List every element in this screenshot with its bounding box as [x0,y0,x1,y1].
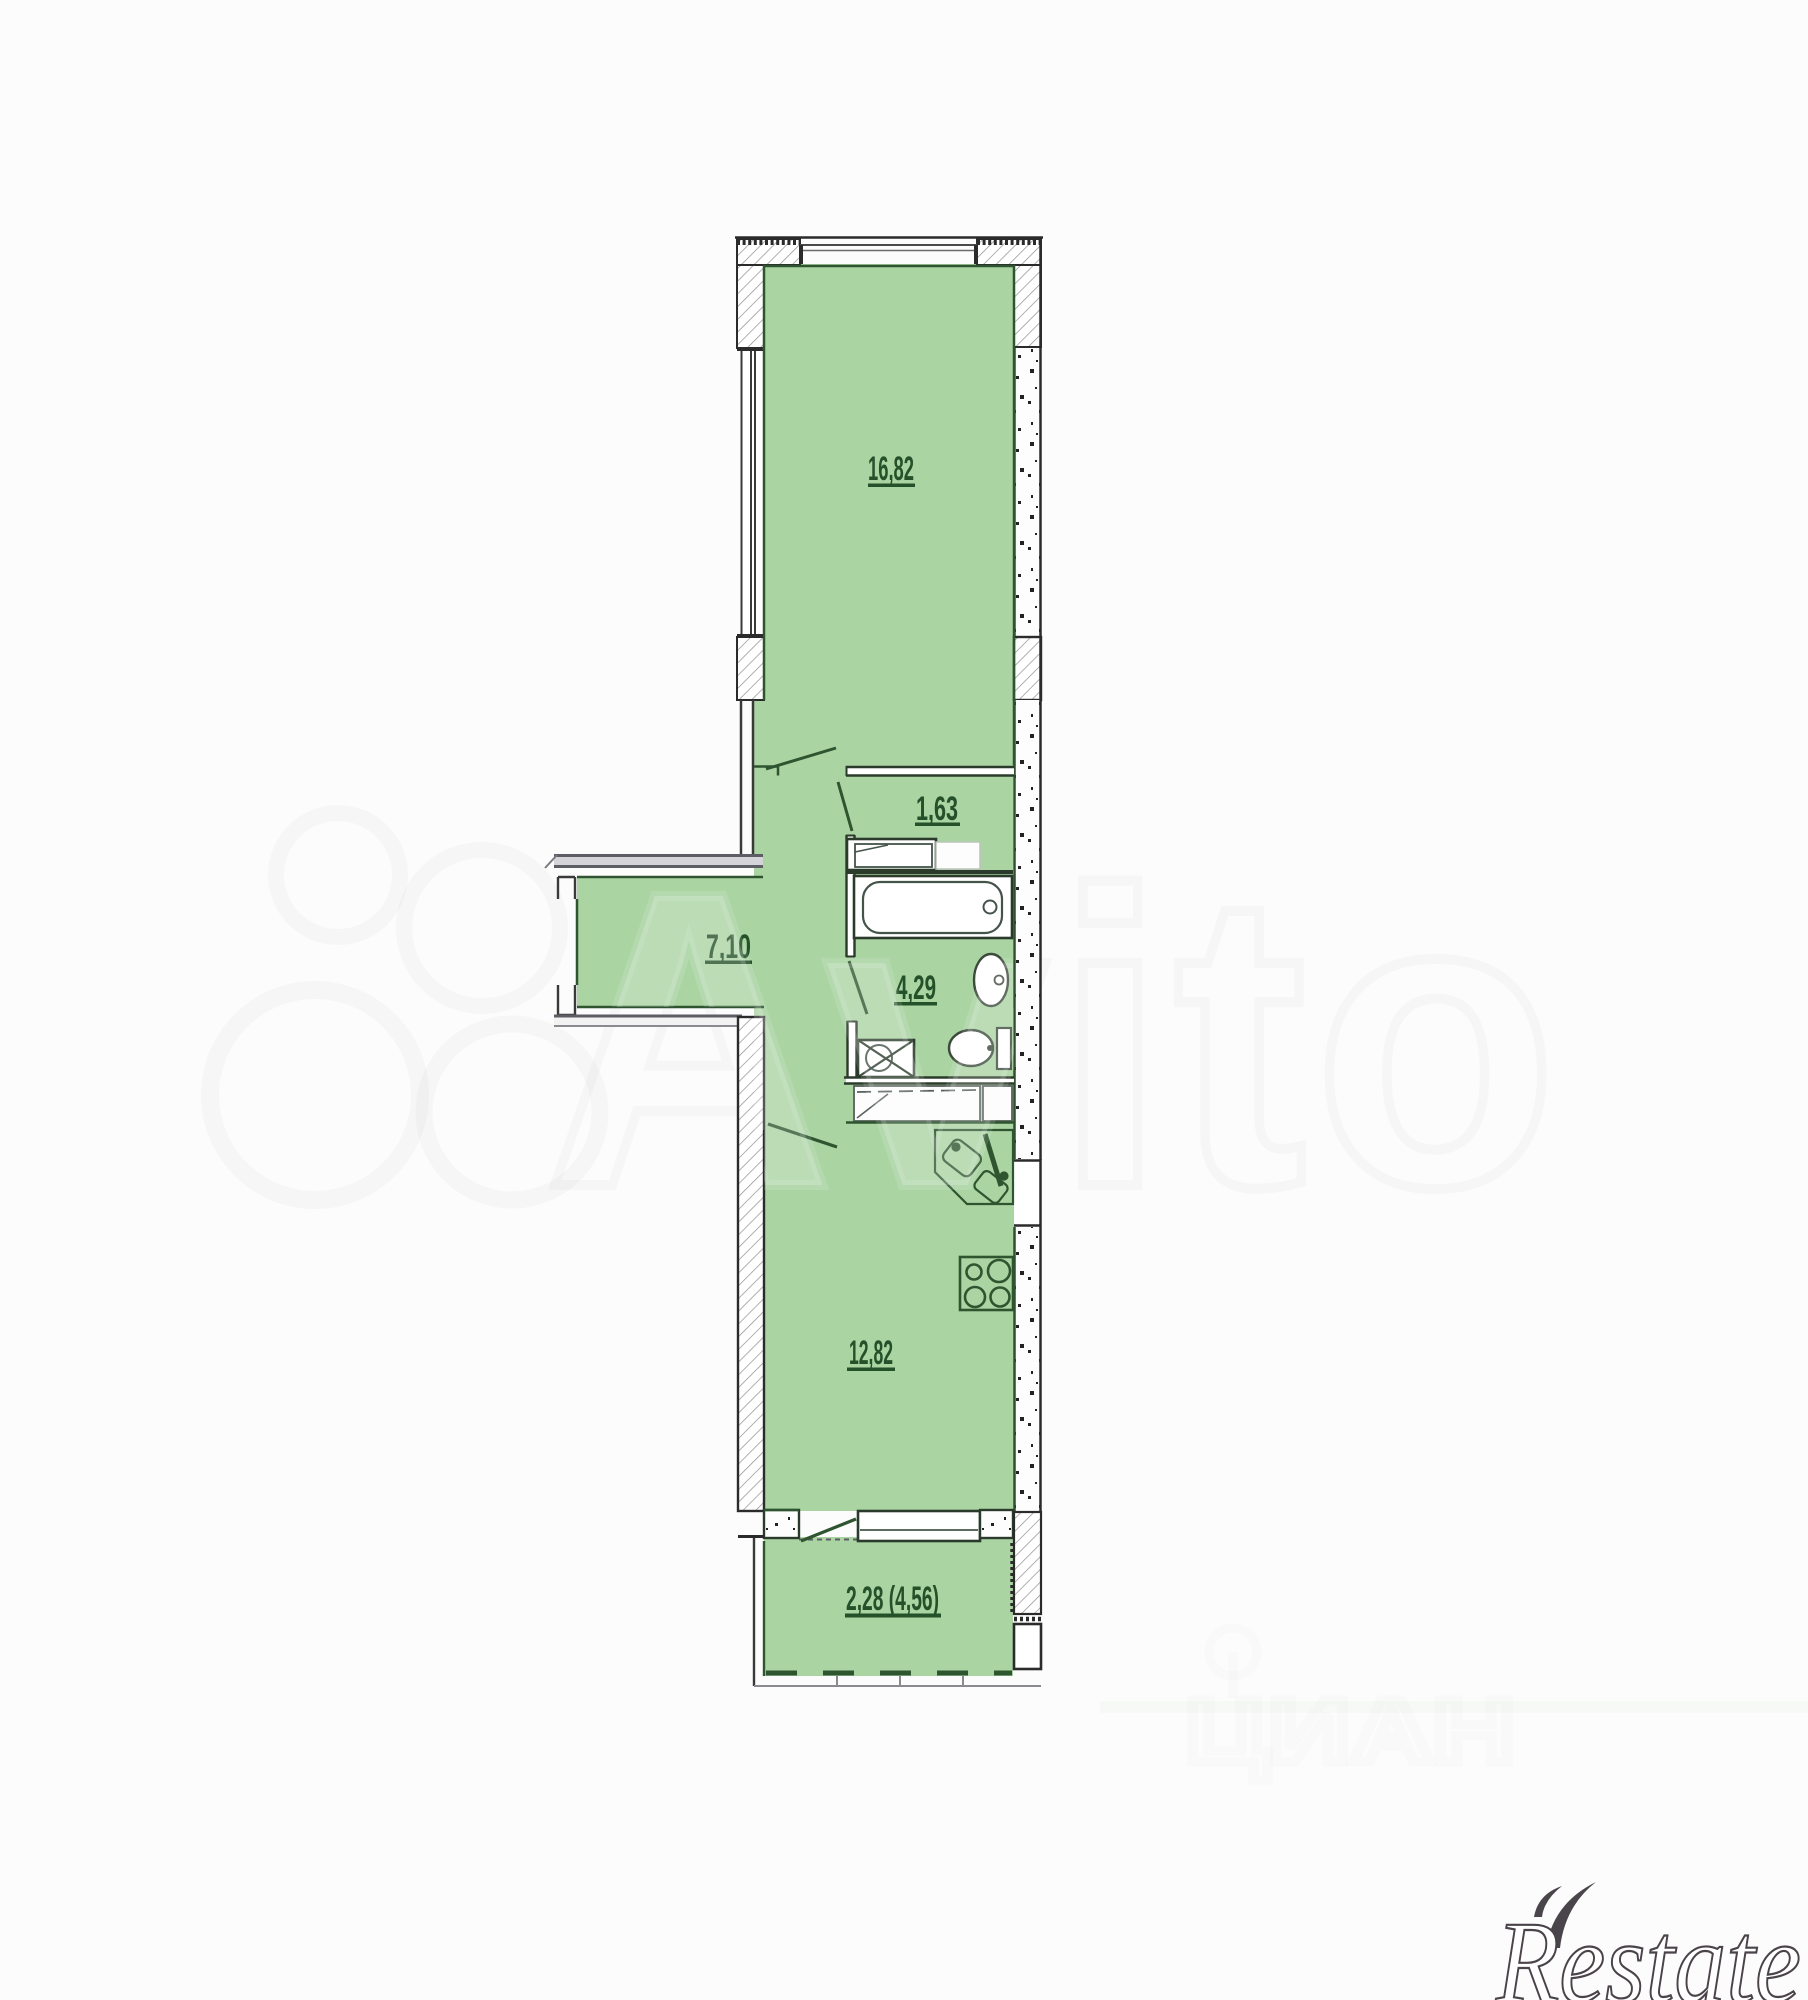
svg-text:2,28 (4,56): 2,28 (4,56) [846,1580,939,1618]
svg-text:Restate: Restate [1495,1897,1801,2000]
svg-text:ЦИАН: ЦИАН [1185,1682,1515,1782]
svg-text:16,82: 16,82 [868,450,914,488]
svg-text:12,82: 12,82 [849,1334,893,1372]
